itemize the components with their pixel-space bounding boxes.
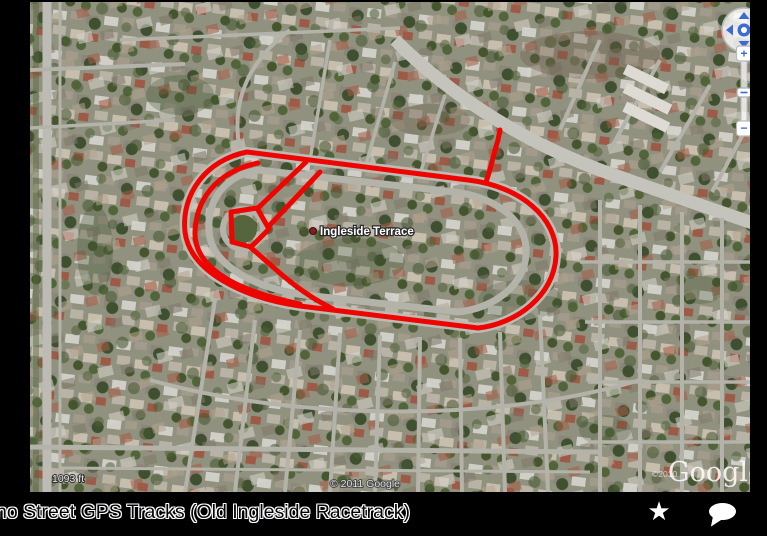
zoom-control: + − xyxy=(737,46,751,136)
satellite-map[interactable]: Ingleside Terrace 1093 ft © 2011 Google … xyxy=(30,2,750,492)
viewer-window: Ingleside Terrace 1093 ft © 2011 Google … xyxy=(0,0,767,536)
zoom-in-label: + xyxy=(740,47,747,61)
google-logo: Google xyxy=(668,457,750,488)
place-dot-icon xyxy=(310,228,317,235)
caption-text: no Street GPS Tracks (Old Ingleside Race… xyxy=(0,501,410,524)
star-icon[interactable]: ★ xyxy=(644,496,674,526)
comment-icon[interactable] xyxy=(709,503,736,520)
scale-text: 1093 ft xyxy=(52,473,84,485)
map-canvas: Ingleside Terrace 1093 ft © 2011 Google … xyxy=(30,2,750,492)
place-label: Ingleside Terrace xyxy=(310,226,414,238)
zoom-out-label: − xyxy=(740,121,747,135)
copyright-text: © 2011 Google xyxy=(330,478,400,490)
place-label-text: Ingleside Terrace xyxy=(320,226,414,238)
